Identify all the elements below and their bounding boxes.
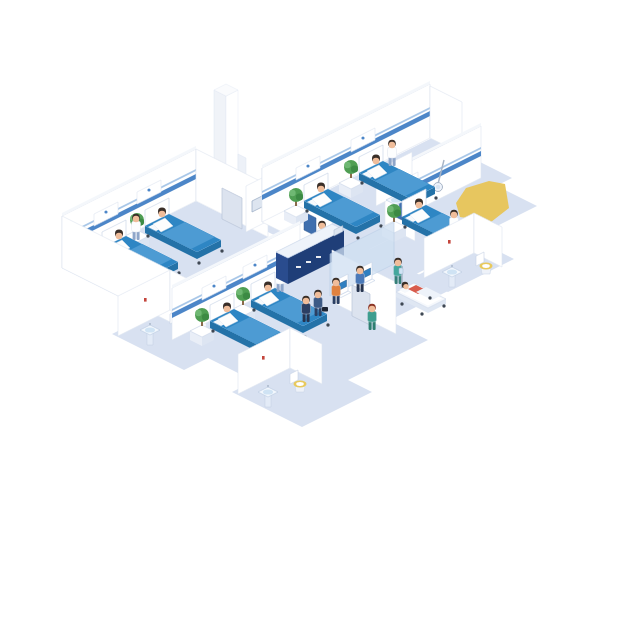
bathroom-sign (448, 240, 451, 244)
bathroom-sign (144, 298, 147, 302)
hospital-ward-illustration: Isometric cutaway illustration of a hosp… (0, 0, 640, 640)
briefcase (322, 307, 328, 312)
iv-bag (399, 268, 403, 274)
bathroom-sign (262, 356, 265, 360)
isometric-hospital-scene: Isometric cutaway illustration of a hosp… (0, 0, 640, 640)
